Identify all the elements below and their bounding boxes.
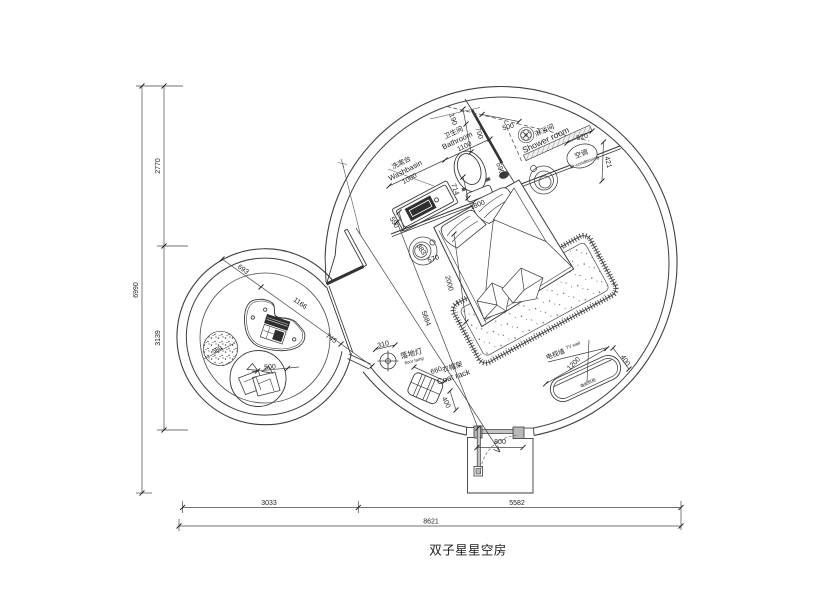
svg-text:6990: 6990: [133, 282, 140, 298]
svg-text:5582: 5582: [509, 500, 525, 507]
svg-text:3139: 3139: [155, 330, 162, 346]
svg-text:3033: 3033: [261, 500, 277, 507]
svg-text:2770: 2770: [155, 158, 162, 174]
svg-text:500: 500: [264, 363, 276, 371]
svg-text:800: 800: [494, 439, 506, 446]
svg-text:双子星星空房: 双子星星空房: [429, 543, 506, 558]
svg-text:8621: 8621: [423, 519, 439, 526]
